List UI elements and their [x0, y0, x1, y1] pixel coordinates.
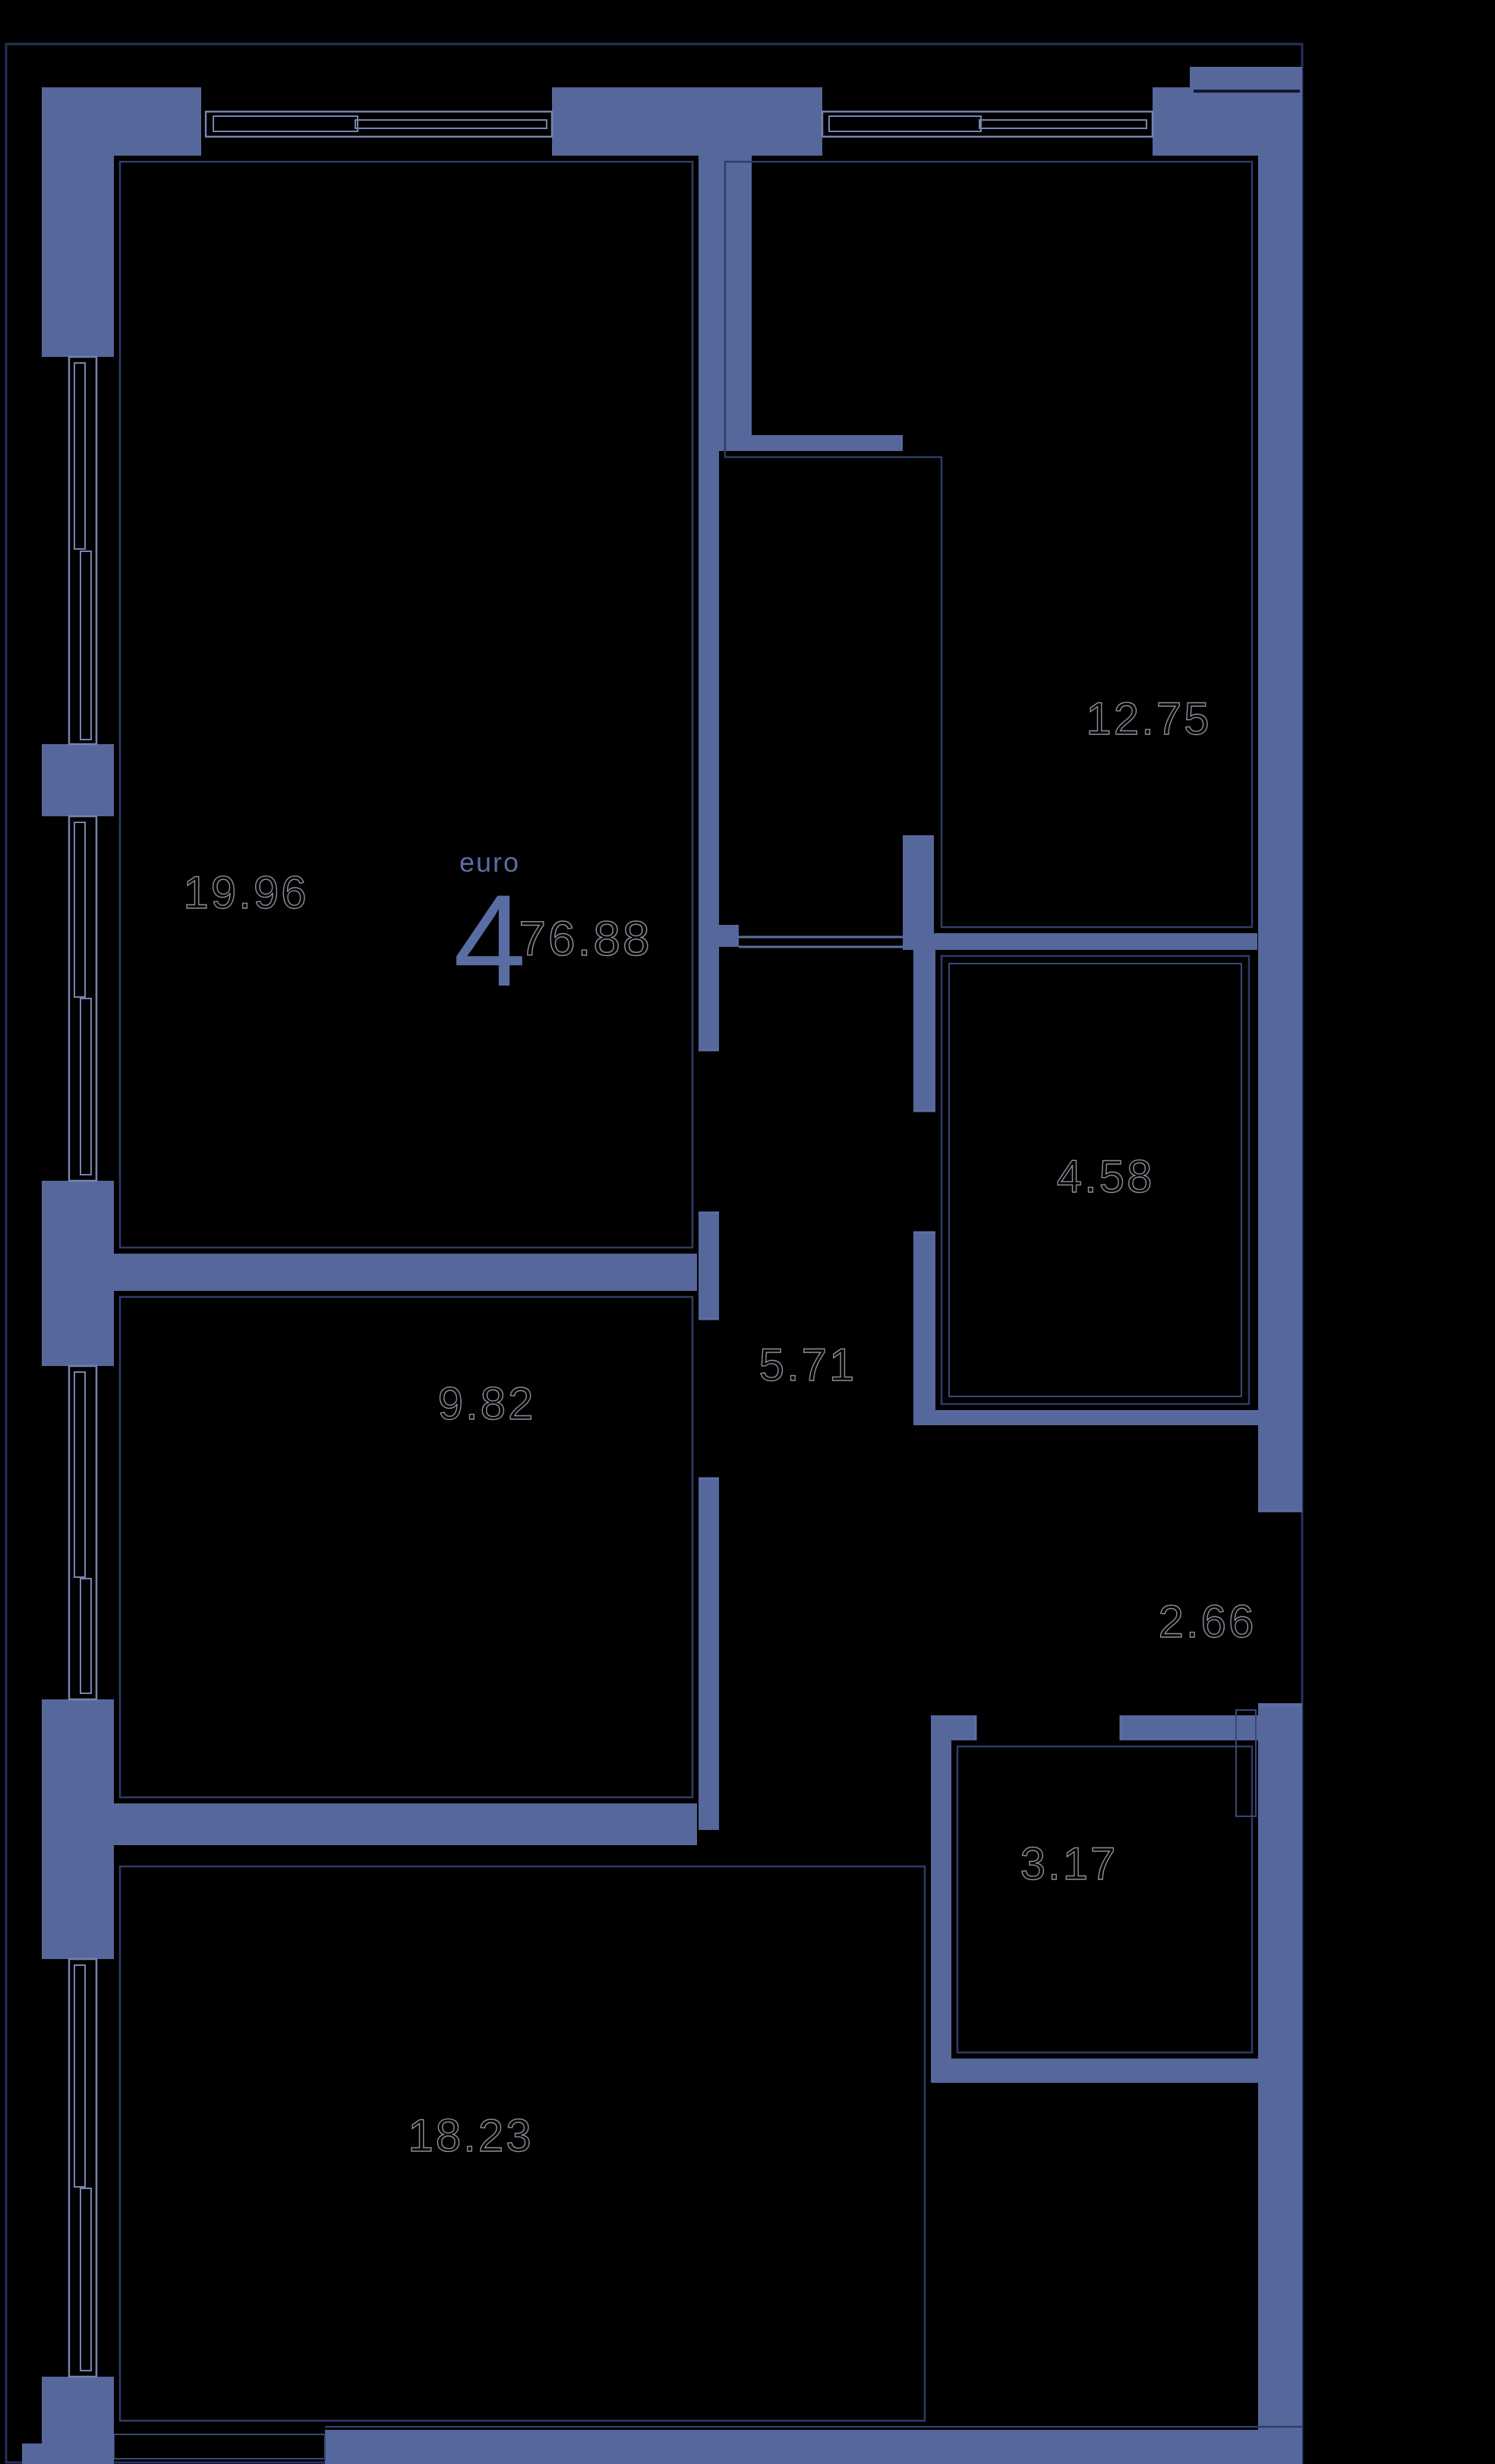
building-outline	[6, 44, 1302, 2462]
wall-left-pier-5	[42, 2377, 114, 2464]
wall-wc-bottom	[931, 2059, 1258, 2083]
wall-bathroom-bottom	[913, 1410, 1258, 1425]
unit-total-area: 76.88	[519, 911, 651, 966]
wall-bathroom-left-lower	[913, 1232, 935, 1410]
room-area-label-4-58: 4.58	[1057, 1151, 1155, 1202]
wall-right-upper	[1258, 154, 1302, 1511]
interior-walls	[114, 156, 1258, 2083]
wall-wc-top-stub	[951, 1715, 976, 1740]
wall-left-pier-2	[42, 744, 114, 816]
room-area-label-3-17: 3.17	[1020, 1838, 1118, 1889]
wall-top-middle	[552, 87, 822, 156]
wall-wc-top-right	[1121, 1715, 1258, 1740]
room-area-label-5-71: 5.71	[759, 1339, 857, 1390]
wall-corridor-west-mid	[699, 1213, 719, 1319]
wall-bathroom-left-upper	[913, 950, 935, 1111]
room-9-82-inset	[120, 1297, 692, 1797]
wall-room2-south-left	[719, 435, 903, 451]
wall-left-pier-1	[42, 87, 114, 357]
wall-right-lower	[1258, 1703, 1302, 2464]
window-symbol-left-2	[69, 816, 96, 1181]
room-area-label-19-96: 19.96	[183, 867, 308, 918]
window-symbol-left-4	[69, 1959, 96, 2377]
room-3-17-inset	[957, 1746, 1252, 2052]
windows	[69, 112, 1153, 2377]
wall-left-pier-4	[42, 1699, 114, 1959]
room-area-label-9-82: 9.82	[438, 1378, 536, 1429]
wall-bathroom-top	[903, 933, 1257, 950]
room-19-96-inset	[120, 162, 692, 1248]
floor-plan: 19.96 12.75 4.58 5.71 9.82 2.66 3.17 18.…	[0, 0, 1495, 2464]
window-symbol-left-3	[69, 1366, 96, 1699]
wall-room1-room3-divider	[114, 1254, 697, 1291]
balcony-opening	[114, 2434, 325, 2459]
window-symbol-left-1	[69, 357, 96, 744]
outline-path	[6, 44, 1302, 2462]
window-symbol-top-1	[206, 112, 552, 137]
wall-corridor-west-lower	[699, 1478, 719, 1830]
wall-room2-east-nib	[903, 835, 934, 933]
wall-bottom	[325, 2430, 1302, 2464]
room-area-label-12-75: 12.75	[1086, 693, 1211, 744]
wall-wc-left	[931, 1715, 951, 2083]
room-area-label-18-23: 18.23	[408, 2110, 533, 2161]
room-area-label-2-66: 2.66	[1159, 1596, 1257, 1647]
unit-title: euro 4 76.88	[453, 847, 651, 1014]
wall-room3-kitchen-divider	[114, 1803, 697, 1845]
room-area-labels: 19.96 12.75 4.58 5.71 9.82 2.66 3.17 18.…	[183, 693, 1256, 2161]
wall-left-pier-3	[42, 1181, 114, 1366]
floor-plan-page: 19.96 12.75 4.58 5.71 9.82 2.66 3.17 18.…	[0, 0, 1495, 2464]
room-12-75-inset	[725, 162, 1252, 927]
wall-door-stub	[719, 925, 739, 947]
wall-corridor-west-upper	[699, 435, 719, 1050]
window-symbol-top-2	[822, 112, 1153, 137]
wall-top-right-corner	[1190, 67, 1302, 154]
unit-rooms-count: 4	[453, 868, 526, 1014]
